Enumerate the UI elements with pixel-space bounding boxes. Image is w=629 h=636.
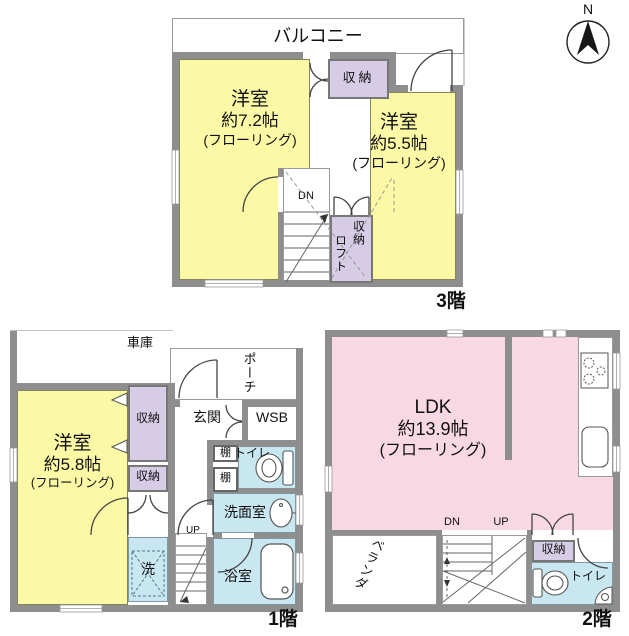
door-arcs-2f [532, 514, 608, 568]
garage-label: 車庫 [114, 336, 166, 351]
laundry-label: 洗 [128, 562, 168, 578]
toilet-icon-2f [533, 569, 568, 597]
entrance-label: 玄関 [178, 410, 236, 426]
stairs-dn-2f-label: DN [437, 516, 467, 528]
closet-2f-label: 収納 [532, 543, 575, 556]
compass-north-label: N [581, 2, 595, 18]
closet-3f-top-label: 収納 [328, 71, 389, 86]
room-west-3f-label: 洋室 約7.2帖 (フローリング) [185, 88, 315, 149]
closet-loft-closet-label: 収納 [351, 220, 364, 246]
stairs-2f-path-arrow [444, 540, 450, 598]
floor2-name-label: 2階 [576, 609, 618, 630]
washroom-label: 洗面室 [214, 505, 276, 521]
toilet-2f-label: トイレ [570, 570, 606, 583]
balcony-label: バルコニー [172, 26, 464, 46]
room-east-3f-label: 洋室 約5.5帖 (フローリング) [340, 111, 458, 172]
room-1f-label: 洋室 約5.8帖 (フローリング) [17, 432, 128, 491]
bathtub-icon [261, 544, 293, 599]
stairs-2f [443, 536, 526, 603]
kitchen-sink-icon [582, 427, 608, 467]
shelf-lower-label: 棚 [213, 472, 238, 484]
floorplan-page: N バルコニー 洋室 約7.2帖 (フローリング) 洋室 約5.5帖 (フローリ… [0, 0, 629, 636]
stairs-up-2f-label: UP [486, 516, 516, 528]
compass-icon [567, 21, 609, 63]
stove-icon [581, 353, 608, 388]
closet-1f-upper-label: 収納 [128, 412, 168, 425]
porch-label: ポーチ [241, 352, 256, 394]
toilet-1f-label: トイレ [234, 447, 270, 460]
closet-1f-lower-label: 収納 [128, 470, 168, 483]
stairs-dn-3f-label: DN [288, 190, 324, 202]
floor3-name-label: 3階 [430, 291, 472, 312]
closet-loft-loft-label: ロフト [333, 234, 346, 273]
bathroom-label: 浴室 [216, 569, 260, 585]
wsb-label: WSB [248, 410, 296, 426]
corner-sink-icon [595, 587, 612, 604]
ldk-label: LDK 約13.9帖 (フローリング) [347, 396, 519, 461]
stairs-down-3f [284, 212, 329, 282]
stairs-up-1f [176, 546, 206, 603]
floor1-name-label: 1階 [262, 609, 304, 630]
stairs-up-1f-label: UP [179, 525, 207, 536]
